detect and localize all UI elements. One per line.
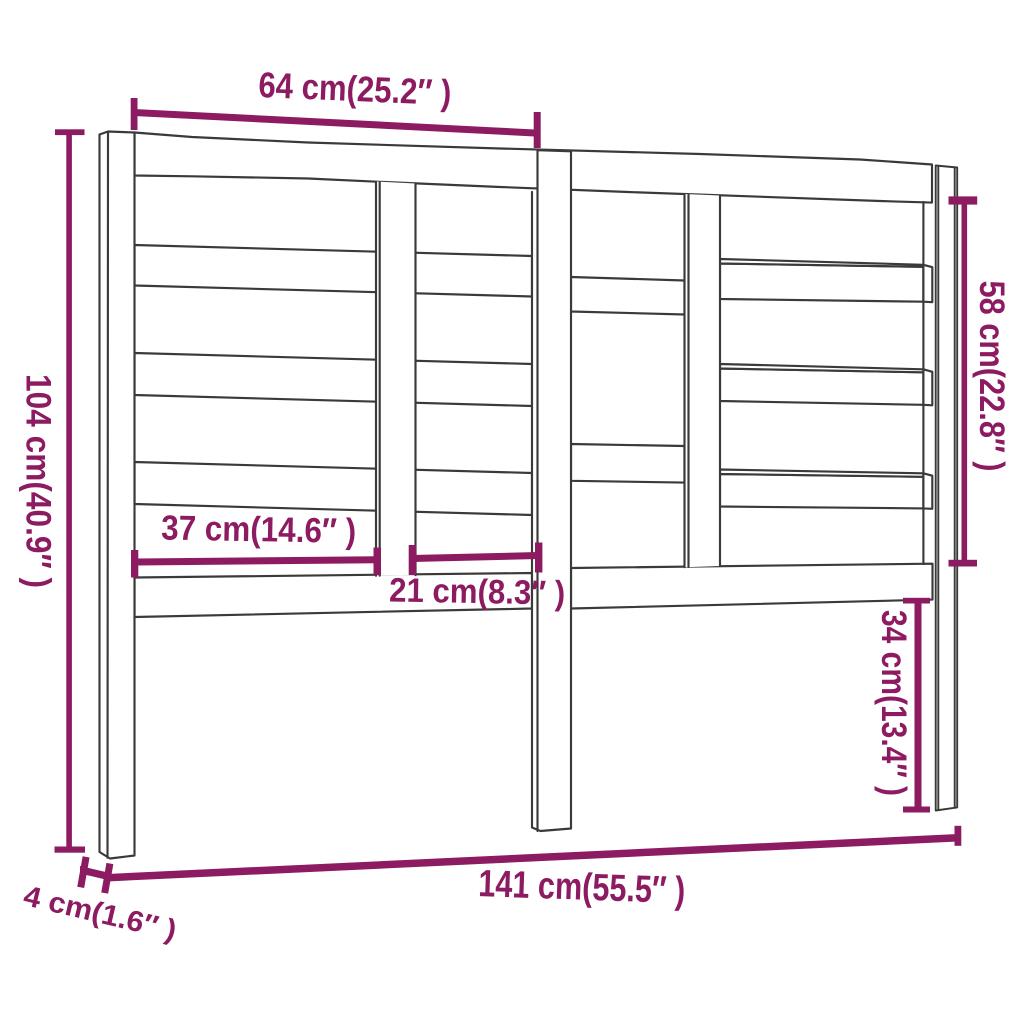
svg-text:104 cm(40.9″ ): 104 cm(40.9″ ) (19, 374, 59, 588)
svg-text:141 cm(55.5″ ): 141 cm(55.5″ ) (478, 863, 686, 912)
svg-text:58 cm(22.8″ ): 58 cm(22.8″ ) (972, 281, 1012, 472)
svg-text:21 cm(8.3″ ): 21 cm(8.3″ ) (389, 572, 566, 613)
svg-text:34 cm(13.4″ ): 34 cm(13.4″ ) (874, 610, 914, 796)
svg-text:37 cm(14.6″ ): 37 cm(14.6″ ) (161, 509, 357, 551)
svg-text:64 cm(25.2″ ): 64 cm(25.2″ ) (258, 64, 453, 113)
